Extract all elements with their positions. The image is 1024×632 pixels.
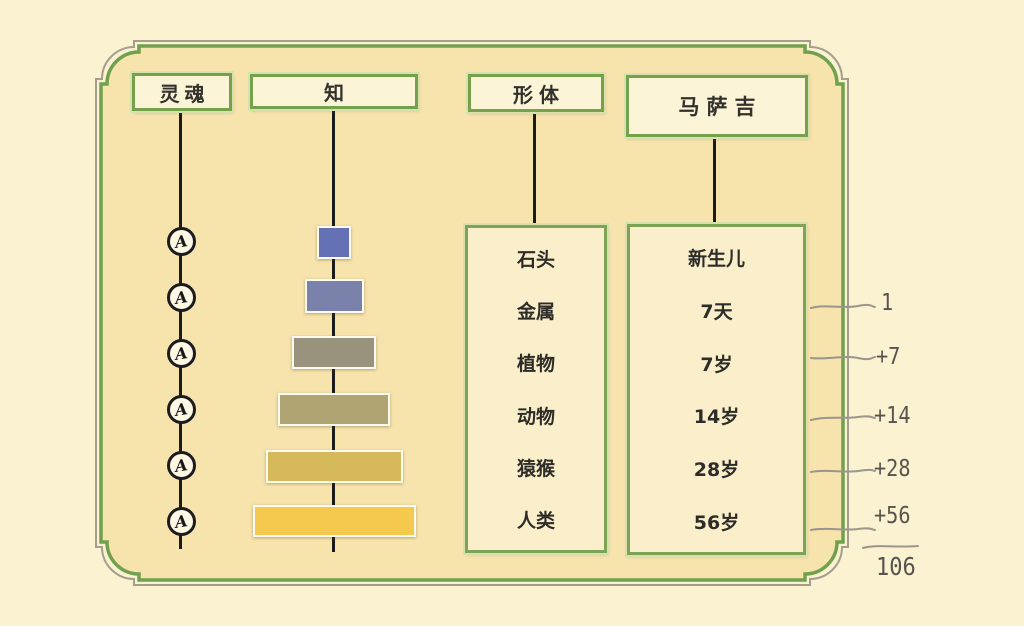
a-glyph-icon: A bbox=[174, 345, 189, 363]
knowledge-bar-6 bbox=[253, 505, 416, 537]
header-masaji: 马萨吉 bbox=[626, 75, 808, 137]
tick-mark bbox=[810, 352, 876, 364]
tick-mark bbox=[810, 301, 876, 313]
header-masaji-label: 马萨吉 bbox=[672, 91, 763, 121]
header-form: 形体 bbox=[468, 74, 604, 112]
total-label: 106 bbox=[876, 552, 916, 581]
a-glyph-icon: A bbox=[174, 513, 189, 531]
knowledge-bar-5 bbox=[266, 450, 403, 483]
form-axis-line bbox=[533, 112, 536, 226]
a-glyph-icon: A bbox=[174, 289, 189, 307]
knowledge-bar-1 bbox=[317, 226, 351, 259]
soul-axis-line bbox=[179, 111, 182, 549]
margin-note-4: +28 bbox=[874, 456, 911, 482]
header-form-label: 形体 bbox=[507, 79, 565, 108]
pyramid-diagram: 灵魂 知 形体 马萨吉 A A A A A A 石头 金属 植物 动物 猿猴 人… bbox=[0, 0, 1024, 626]
a-glyph-icon: A bbox=[174, 233, 189, 251]
margin-note-3: +14 bbox=[874, 403, 911, 429]
soul-node: A bbox=[167, 283, 196, 312]
soul-node: A bbox=[167, 395, 196, 424]
masaji-panel: 新生儿 7天 7岁 14岁 28岁 56岁 bbox=[627, 224, 806, 555]
margin-note-2: +7 bbox=[876, 344, 900, 370]
bottom-white-strip bbox=[0, 626, 1024, 632]
header-knowledge: 知 bbox=[250, 74, 418, 109]
margin-note-5: +56 bbox=[874, 503, 911, 529]
form-row: 猿猴 bbox=[468, 441, 604, 493]
form-row: 石头 bbox=[468, 232, 604, 284]
soul-node: A bbox=[167, 507, 196, 536]
tick-mark bbox=[810, 465, 876, 477]
knowledge-bar-3 bbox=[292, 336, 376, 369]
tick-mark bbox=[810, 524, 876, 536]
form-row: 动物 bbox=[468, 389, 604, 441]
form-panel: 石头 金属 植物 动物 猿猴 人类 bbox=[465, 225, 607, 553]
masaji-row: 新生儿 bbox=[630, 231, 803, 284]
masaji-axis-line bbox=[713, 137, 716, 225]
a-glyph-icon: A bbox=[174, 457, 189, 475]
knowledge-axis-line bbox=[332, 109, 335, 552]
tick-mark bbox=[810, 412, 876, 424]
header-knowledge-label: 知 bbox=[324, 77, 344, 106]
header-soul: 灵魂 bbox=[132, 73, 232, 111]
masaji-row: 28岁 bbox=[630, 442, 803, 495]
header-soul-label: 灵魂 bbox=[155, 78, 210, 107]
knowledge-bar-4 bbox=[278, 393, 390, 426]
masaji-row: 7岁 bbox=[630, 337, 803, 390]
masaji-row: 7天 bbox=[630, 284, 803, 337]
soul-node: A bbox=[167, 339, 196, 368]
knowledge-bar-2 bbox=[305, 279, 364, 313]
soul-node: A bbox=[167, 451, 196, 480]
form-row: 金属 bbox=[468, 284, 604, 336]
masaji-row: 14岁 bbox=[630, 389, 803, 442]
a-glyph-icon: A bbox=[174, 401, 189, 419]
form-row: 植物 bbox=[468, 337, 604, 389]
masaji-row: 56岁 bbox=[630, 495, 803, 548]
soul-node: A bbox=[167, 227, 196, 256]
form-row: 人类 bbox=[468, 494, 604, 546]
margin-note-1: 1 bbox=[881, 290, 893, 316]
